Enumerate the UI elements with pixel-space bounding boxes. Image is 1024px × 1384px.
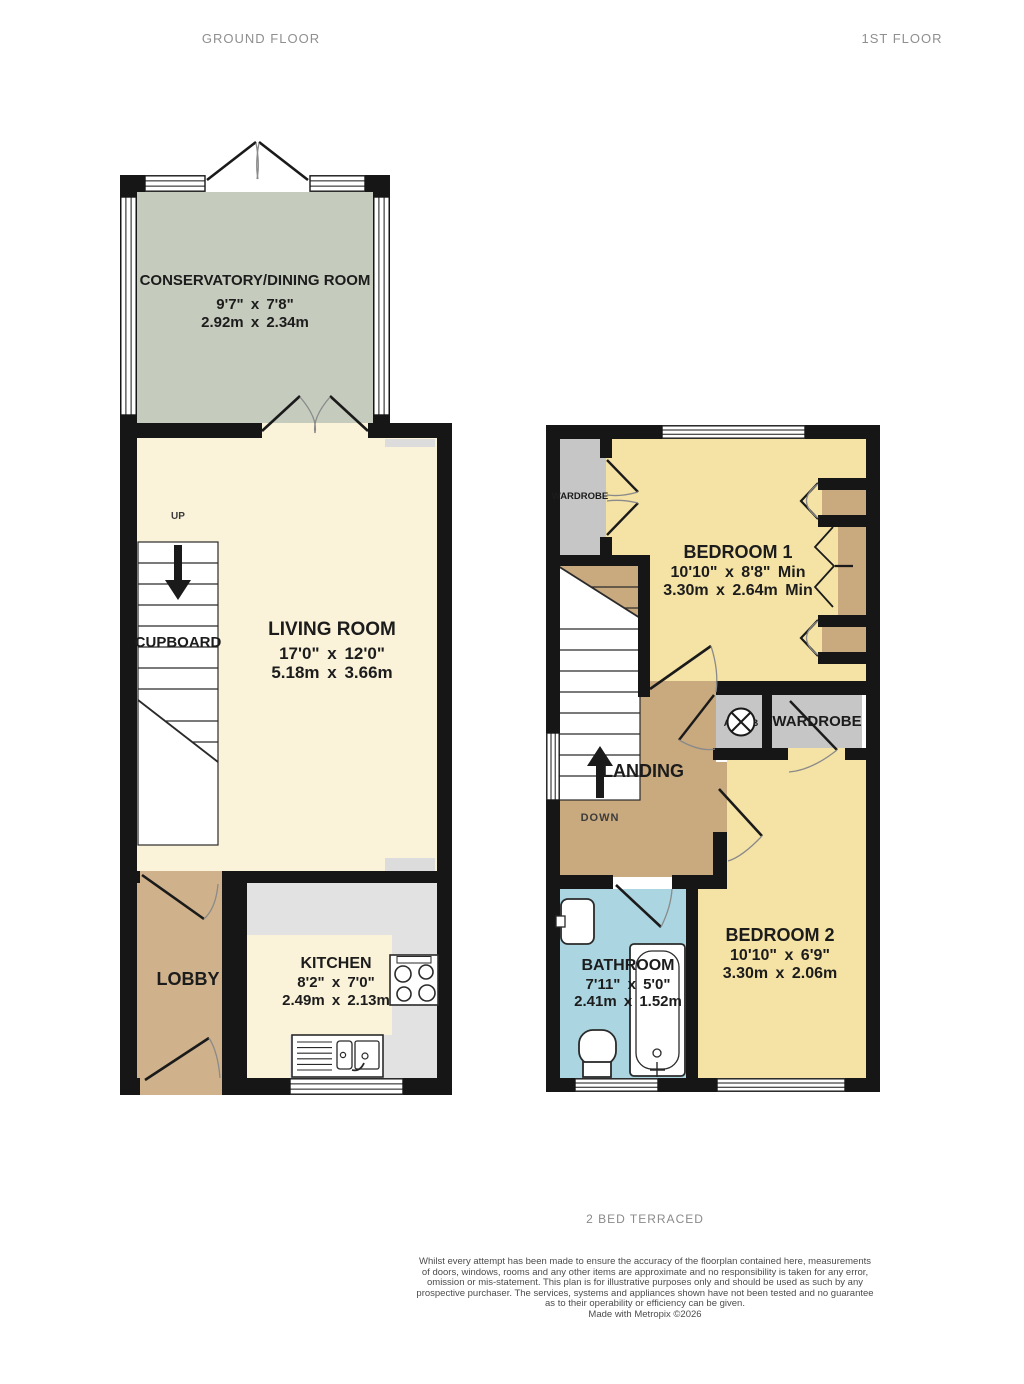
bedroom2-dims-metric: 3.30m x 2.06m bbox=[723, 965, 838, 983]
floorplan-drawing: A/CUPB bbox=[0, 0, 1024, 1384]
kitchen-window bbox=[290, 1079, 403, 1094]
credit-line: Made with Metropix ©2026 bbox=[385, 1310, 905, 1321]
recess-bay-bottom-floor bbox=[822, 627, 866, 652]
living-room-dims-imperial: 17'0" x 12'0" bbox=[268, 644, 396, 663]
conservatory-dims-imperial: 9'7" x 7'8" bbox=[140, 296, 371, 314]
bathroom-dims-metric: 2.41m x 1.52m bbox=[574, 993, 682, 1010]
radiator-bottom bbox=[385, 858, 435, 871]
conservatory-window-right bbox=[374, 197, 389, 415]
bathroom-window bbox=[575, 1079, 658, 1091]
stairs-down-label: DOWN bbox=[581, 812, 620, 824]
bathroom-label: BATHROOM 7'11" x 5'0" 2.41m x 1.52m bbox=[574, 957, 682, 1010]
toilet-icon bbox=[579, 1030, 616, 1077]
recess-wardrobe-floor bbox=[838, 515, 866, 627]
kitchen-sink-icon bbox=[292, 1035, 383, 1077]
conservatory-name: CONSERVATORY/DINING ROOM bbox=[140, 272, 371, 289]
bedroom1-window bbox=[662, 426, 805, 438]
stairs-up-label: UP bbox=[171, 511, 185, 522]
bathroom-name: BATHROOM bbox=[574, 957, 682, 975]
cupboard-label: CUPBOARD bbox=[135, 634, 222, 651]
lobby-label: LOBBY bbox=[157, 969, 220, 990]
kitchen-dims-metric: 2.49m x 2.13m bbox=[282, 992, 390, 1010]
bedroom2-name: BEDROOM 2 bbox=[723, 925, 838, 946]
disclaimer-text: Whilst every attempt has been made to en… bbox=[385, 1257, 905, 1321]
bathroom-sink-icon bbox=[556, 899, 594, 944]
kitchen-name: KITCHEN bbox=[282, 955, 390, 973]
landing-window bbox=[547, 733, 559, 800]
bathroom-dims-imperial: 7'11" x 5'0" bbox=[574, 976, 682, 993]
conservatory-dims-metric: 2.92m x 2.34m bbox=[140, 314, 371, 332]
bedroom1-name: BEDROOM 1 bbox=[663, 542, 813, 563]
landing-label: LANDING bbox=[602, 761, 684, 782]
living-room-name: LIVING ROOM bbox=[268, 619, 396, 641]
bedroom1-dims-imperial: 10'10" x 8'8" Min bbox=[663, 564, 813, 582]
kitchen-dims-imperial: 8'2" x 7'0" bbox=[282, 974, 390, 992]
conservatory-exterior-french-doors bbox=[207, 142, 308, 180]
bedroom1-wardrobe-label: WARDROBE bbox=[552, 491, 608, 502]
kitchen-label: KITCHEN 8'2" x 7'0" 2.49m x 2.13m bbox=[282, 955, 390, 1010]
kitchen-hob-icon bbox=[390, 955, 438, 1005]
entrance-doorway-floor bbox=[140, 1078, 222, 1095]
floorplan-image: A/CUPB bbox=[0, 0, 1024, 1384]
disclaimer-line: Whilst every attempt has been made to en… bbox=[385, 1257, 905, 1268]
bedroom2-dims-imperial: 10'10" x 6'9" bbox=[723, 947, 838, 965]
bedroom1-dims-metric: 3.30m x 2.64m Min bbox=[663, 582, 813, 600]
first-floor-title: 1ST FLOOR bbox=[861, 31, 942, 46]
bedroom2-label: BEDROOM 2 10'10" x 6'9" 3.30m x 2.06m bbox=[723, 925, 838, 983]
conservatory-label: CONSERVATORY/DINING ROOM 9'7" x 7'8" 2.9… bbox=[140, 272, 371, 332]
recess-bay-top-floor bbox=[822, 490, 866, 515]
living-room-dims-metric: 5.18m x 3.66m bbox=[268, 663, 396, 682]
hot-water-tank-icon bbox=[728, 709, 755, 736]
bedroom2-window bbox=[717, 1079, 845, 1091]
conservatory-window-top-left bbox=[145, 176, 205, 191]
bedroom1-label: BEDROOM 1 10'10" x 8'8" Min 3.30m x 2.64… bbox=[663, 542, 813, 600]
bedroom2-floor-upper bbox=[727, 760, 866, 887]
bedroom2-wardrobe-label: WARDROBE bbox=[772, 713, 861, 730]
conservatory-window-left bbox=[121, 197, 136, 415]
living-room-label: LIVING ROOM 17'0" x 12'0" 5.18m x 3.66m bbox=[268, 619, 396, 682]
radiator-top bbox=[385, 439, 435, 447]
plan-caption: 2 BED TERRACED bbox=[586, 1212, 704, 1226]
conservatory-window-top-right bbox=[310, 176, 365, 191]
ground-floor-title: GROUND FLOOR bbox=[202, 31, 320, 46]
